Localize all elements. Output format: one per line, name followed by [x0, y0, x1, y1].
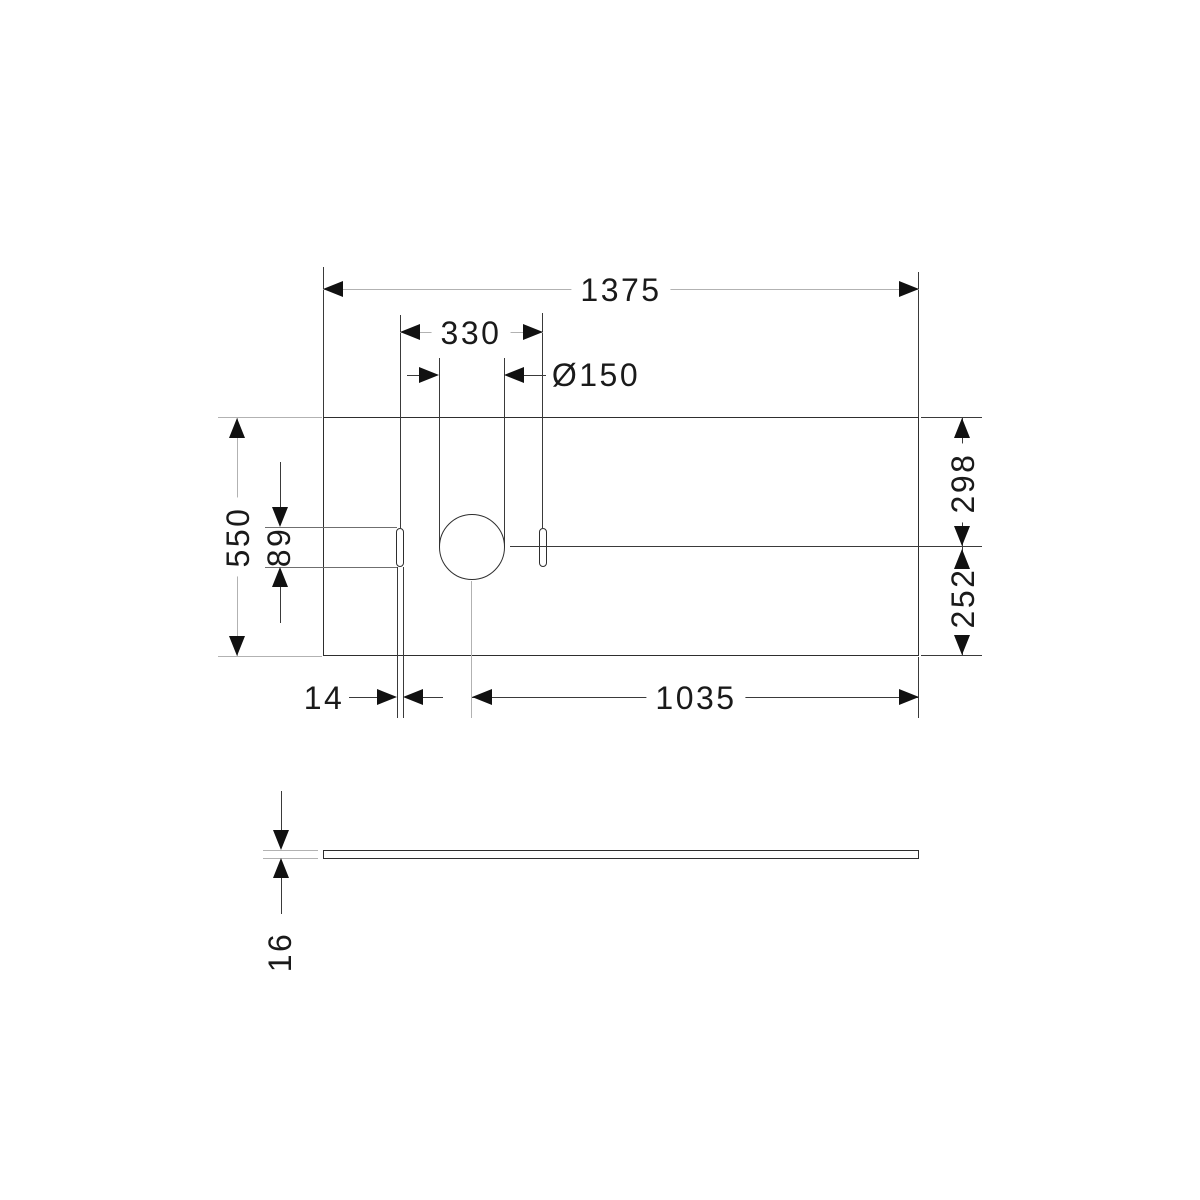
dim-label-slot-length: 89 [263, 527, 295, 568]
arrow-89-top [272, 507, 288, 527]
dim-label-slot-width: 14 [304, 682, 345, 714]
dim-stem-150-right [524, 375, 546, 376]
dim-stem-16-top [281, 791, 282, 831]
ext-line-circle-left-tangent [439, 358, 440, 547]
right-slot-hole [539, 528, 547, 567]
dim-label-plate-thickness: 16 [264, 932, 296, 973]
left-slot-hole [396, 528, 404, 567]
arrow-550-bottom [229, 636, 245, 656]
dim-stem-14-left [349, 697, 378, 698]
arrow-16-top [273, 830, 289, 850]
arrow-550-top [229, 418, 245, 438]
arrow-14-left [377, 689, 397, 705]
hole-centerline [510, 546, 982, 547]
arrow-89-bottom [272, 567, 288, 587]
dim-label-hole-diameter: Ø150 [552, 359, 640, 391]
dim-stem-14-right [423, 697, 443, 698]
arrow-330-right [523, 324, 543, 340]
arrow-1375-left [323, 281, 343, 297]
ext-line-depth-bottom [218, 656, 322, 657]
arrow-1375-right [899, 281, 919, 297]
arrow-298-top [954, 418, 970, 438]
side-view-plate-outline [323, 850, 919, 859]
ext-line-thickness-bottom [263, 858, 318, 859]
ext-line-slot-left-side [397, 567, 398, 718]
arrow-14-right [403, 689, 423, 705]
dim-stem-89-top [280, 462, 281, 508]
dim-label-center-to-right-edge: 1035 [646, 680, 745, 716]
ext-line-right-slot-center [542, 313, 543, 528]
dim-label-center-to-front: 252 [945, 559, 981, 638]
arrow-150-right [504, 367, 524, 383]
arrow-150-left [419, 367, 439, 383]
arrow-1035-left [472, 689, 492, 705]
ext-line-right-bottom [921, 655, 982, 656]
dim-label-overall-width: 1375 [571, 272, 670, 308]
arrow-252-bottom [954, 635, 970, 655]
ext-line-right-edge-lower [918, 657, 919, 718]
round-hole [439, 514, 505, 580]
dim-label-center-to-back: 298 [945, 444, 981, 523]
ext-line-right-top [921, 417, 982, 418]
technical-drawing-canvas: 1375 330 Ø150 550 89 298 252 14 1035 16 [0, 0, 1200, 1200]
ext-line-left-slot-center [400, 315, 401, 528]
ext-line-circle-right-tangent [504, 358, 505, 547]
dim-stem-89-bottom [280, 587, 281, 623]
top-view-plate-outline [323, 417, 919, 656]
dim-stem-16-bottom [281, 878, 282, 914]
arrow-252-top [954, 549, 970, 569]
arrow-1035-right [899, 689, 919, 705]
dim-label-slot-spacing: 330 [432, 315, 511, 351]
arrow-330-left [400, 324, 420, 340]
arrow-16-bottom [273, 858, 289, 878]
arrow-298-bottom [954, 526, 970, 546]
dim-label-overall-depth: 550 [220, 498, 256, 577]
ext-line-thickness-top [263, 850, 318, 851]
